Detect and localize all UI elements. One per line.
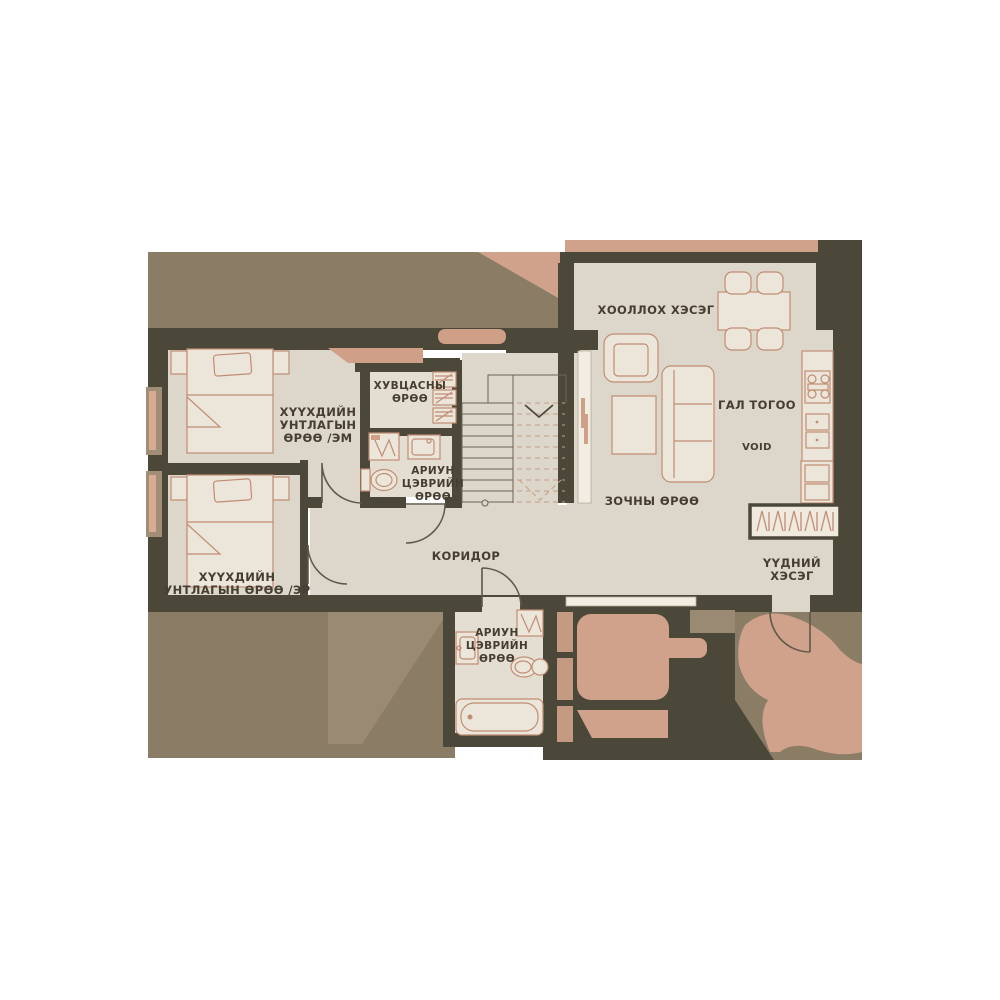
toilet-tank-icon — [361, 469, 370, 491]
dining-table-icon — [718, 292, 790, 330]
label-dining: ХООЛЛОХ ХЭСЭГ — [598, 303, 715, 317]
ac-unit-icon — [438, 329, 506, 344]
chair-icon — [725, 272, 751, 294]
wall-right-lower — [833, 300, 862, 612]
closet-outline — [750, 505, 840, 538]
label-kitchen: ГАЛ ТОГОО — [718, 398, 796, 412]
shaft-cell-2 — [557, 658, 573, 700]
shaft-cell-1 — [557, 612, 573, 652]
stairs-floor — [462, 353, 558, 505]
corridor-niche — [566, 597, 696, 606]
sofa-icon — [662, 366, 714, 482]
shaft-lobby — [577, 614, 669, 700]
coffee-table-icon — [612, 396, 656, 454]
entrance-jamb-right — [810, 596, 815, 611]
exterior-top-strip — [565, 240, 818, 252]
cabinet-knob — [816, 421, 819, 424]
entrance-jamb-left — [767, 596, 772, 611]
label-void: VOID — [742, 442, 772, 453]
kitchen-fixtures — [801, 351, 833, 503]
label-bath-lower-3: ӨРӨӨ — [479, 653, 515, 665]
pillow-icon — [213, 479, 251, 503]
nightstand-icon — [171, 351, 187, 374]
chair-icon — [725, 328, 751, 350]
shaft-lobby-tongue — [660, 638, 707, 658]
label-bath-upper-1: АРИУН — [411, 465, 455, 477]
wall-bedroom-divider — [160, 463, 308, 475]
pillow-icon — [213, 353, 251, 377]
shaft-cell-3 — [557, 706, 573, 742]
label-bedroom-em-3: ӨРӨӨ /ЭМ — [283, 431, 352, 445]
label-entry-1: ҮҮДНИЙ — [762, 555, 821, 570]
label-wardrobe-1: ХУВЦАСНЫ — [374, 380, 447, 392]
label-entry-2: ХЭСЭГ — [770, 569, 814, 583]
toilet-tank-icon — [532, 659, 548, 675]
armchair-icon — [604, 334, 658, 382]
shaft-brown-patch — [690, 610, 735, 633]
wall-corridor-top-a — [307, 497, 322, 508]
label-bath-lower-2: ЦЭВРИЙН — [466, 639, 528, 652]
bedroom-em-furniture — [171, 349, 289, 453]
label-bath-lower-1: АРИУН — [475, 627, 519, 639]
entry-closet — [750, 505, 840, 538]
toilet-icon — [371, 470, 397, 491]
floor-plan-page: ХООЛЛОХ ХЭСЭГ ГАЛ ТОГОО VOID ЗОЧНЫ ӨРӨӨ … — [0, 0, 1000, 1000]
label-bath-upper-2: ЦЭВРИЙН — [402, 477, 464, 490]
wall-corridor-top-b — [360, 497, 406, 508]
floor-plan: ХООЛЛОХ ХЭСЭГ ГАЛ ТОГОО VOID ЗОЧНЫ ӨРӨӨ … — [0, 0, 1000, 1000]
nightstand-icon — [171, 477, 187, 500]
label-bedroom-er-1: ХҮҮХДИЙН — [199, 569, 276, 584]
chair-icon — [757, 328, 783, 350]
chair-icon — [757, 272, 783, 294]
label-wardrobe-2: ӨРӨӨ — [392, 393, 428, 405]
entrance-opening — [772, 595, 810, 612]
nightstand-icon — [273, 477, 289, 500]
label-bedroom-em-2: УНТЛАГЫН — [280, 418, 357, 432]
washing-machine-icon — [517, 610, 543, 636]
stair-handrail-icon — [584, 414, 588, 444]
window-icon — [149, 391, 156, 450]
cabinet-knob — [816, 439, 819, 442]
window-icon — [149, 475, 156, 532]
label-corridor: КОРИДОР — [432, 549, 500, 563]
nightstand-icon — [273, 351, 289, 374]
bathtub-drain-icon — [468, 715, 473, 720]
label-bath-upper-3: ӨРӨӨ — [415, 491, 451, 503]
label-bedroom-er-2: УНТЛАГЫН ӨРӨӨ /ЭР — [163, 583, 310, 597]
wall-bath-lower-left — [443, 605, 455, 747]
label-living: ЗОЧНЫ ӨРӨӨ — [605, 494, 700, 508]
wall-greatroom-top — [560, 252, 838, 263]
shaft-lower-cell — [577, 710, 668, 738]
washing-machine-badge — [371, 435, 380, 440]
stair-newel-icon — [482, 500, 488, 506]
label-bedroom-em-1: ХҮҮХДИЙН — [280, 404, 357, 419]
